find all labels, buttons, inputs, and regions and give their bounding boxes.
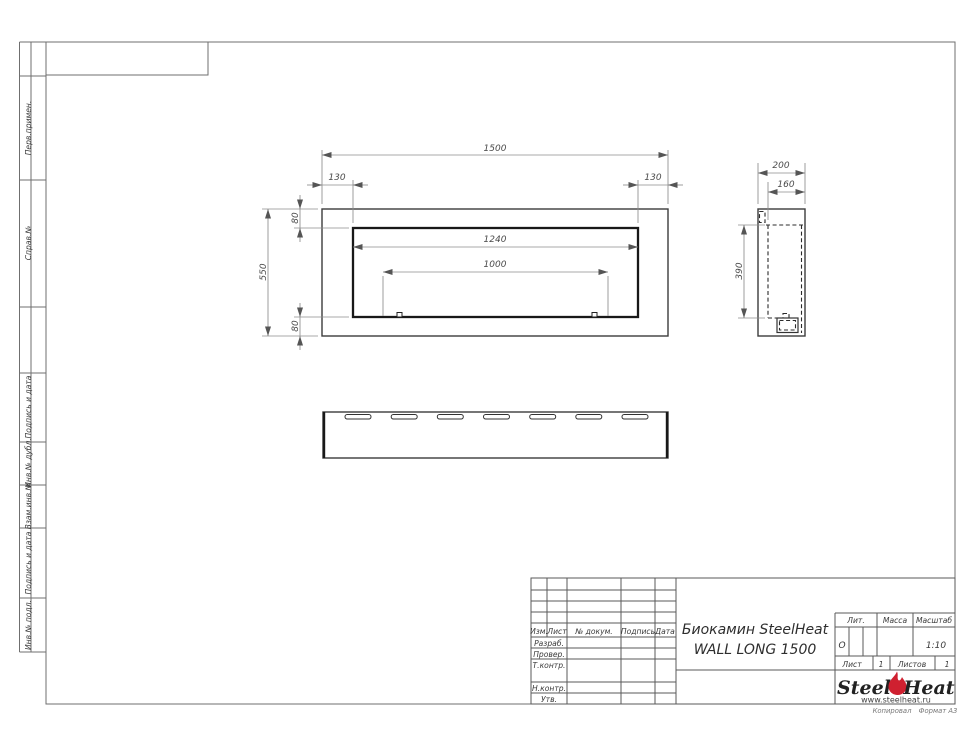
sidebar-label: Справ.№ <box>24 226 33 261</box>
dim-text-1500: 1500 <box>484 144 507 154</box>
dim-text-130-right: 130 <box>644 173 661 183</box>
tb-scale-label: Масштаб <box>916 616 952 625</box>
side-burner-hidden <box>780 321 796 331</box>
document-title-line1: Биокамин SteelHeat <box>682 622 829 638</box>
front-notch-right <box>592 313 597 318</box>
sidebar: Перв.примен. Справ.№ Подпись и дата Инв.… <box>20 42 47 652</box>
tb-header-doc: № докум. <box>574 627 612 636</box>
bottom-view <box>323 412 668 458</box>
sidebar-label: Подпись и дата <box>24 375 33 438</box>
side-view <box>758 209 805 336</box>
ventilation-slots <box>345 415 648 420</box>
tb-sheet-label: Лист <box>841 660 862 669</box>
footer-notes: Копировал Формат А3 <box>873 707 958 715</box>
sidebar-label: Инв.№ подл. <box>24 600 33 650</box>
sidebar-label: Взам.инв.№ <box>24 483 33 530</box>
side-view-dimensions: 200 160 390 <box>735 161 805 318</box>
logo: Steel Heat www.steelheat.ru <box>837 672 955 705</box>
designation-box <box>46 42 208 75</box>
tb-role-tkontr: Т.контр. <box>533 661 566 670</box>
dim-text-200: 200 <box>772 161 789 171</box>
tb-header-izm: Изм. <box>530 627 548 636</box>
vent-slot <box>345 415 371 420</box>
vent-slot <box>484 415 510 420</box>
vent-slot <box>437 415 463 420</box>
vent-slot <box>391 415 417 420</box>
tb-lit-label: Лит. <box>846 616 864 625</box>
tb-role-razrab: Разраб. <box>534 639 564 648</box>
dim-text-1000: 1000 <box>484 260 507 270</box>
tb-sheets-value: 1 <box>945 660 950 669</box>
tb-mass-label: Масса <box>883 616 908 625</box>
side-burner-tab-hidden <box>783 314 789 319</box>
tb-role-utv: Утв. <box>541 695 557 704</box>
side-outer-contour <box>758 209 805 336</box>
dim-text-160: 160 <box>777 180 794 190</box>
sidebar-label: Инв.№ дубл. <box>24 438 33 488</box>
tb-scale-value: 1:10 <box>926 641 946 651</box>
sidebar-label: Перв.примен. <box>24 101 33 156</box>
dim-text-1240: 1240 <box>484 235 507 245</box>
sheet-frame <box>46 42 955 704</box>
drawing-sheet: Перв.примен. Справ.№ Подпись и дата Инв.… <box>0 0 970 749</box>
tb-lit-value: О <box>838 641 845 651</box>
dim-text-80-top: 80 <box>291 212 301 224</box>
dim-text-550: 550 <box>259 263 269 280</box>
front-notch-left <box>397 313 402 318</box>
dim-text-80-bottom: 80 <box>291 320 301 332</box>
sidebar-label: Подпись и дата <box>24 531 33 594</box>
tb-sheet-value: 1 <box>879 660 884 669</box>
copy-note: Копировал <box>873 707 912 715</box>
tb-role-prover: Провер. <box>533 650 565 659</box>
side-bracket-hidden <box>760 212 766 223</box>
tb-role-nkontr: Н.контр. <box>532 684 566 693</box>
tb-header-podpis: Подпись <box>621 627 655 636</box>
tb-sheets-label: Листов <box>897 660 927 669</box>
vent-slot <box>622 415 648 420</box>
logo-website: www.steelheat.ru <box>861 696 931 705</box>
vent-slot <box>530 415 556 420</box>
frame-border <box>46 42 955 704</box>
tb-header-list: Лист <box>546 627 567 636</box>
dim-text-390: 390 <box>735 262 745 279</box>
tb-header-data: Дата <box>654 627 675 636</box>
sheet-svg: Перв.примен. Справ.№ Подпись и дата Инв.… <box>0 0 970 749</box>
dim-text-130-left: 130 <box>328 173 345 183</box>
front-view <box>322 209 668 336</box>
vent-slot <box>576 415 602 420</box>
format-note: Формат А3 <box>919 707 958 715</box>
document-title-line2: WALL LONG 1500 <box>694 642 817 658</box>
